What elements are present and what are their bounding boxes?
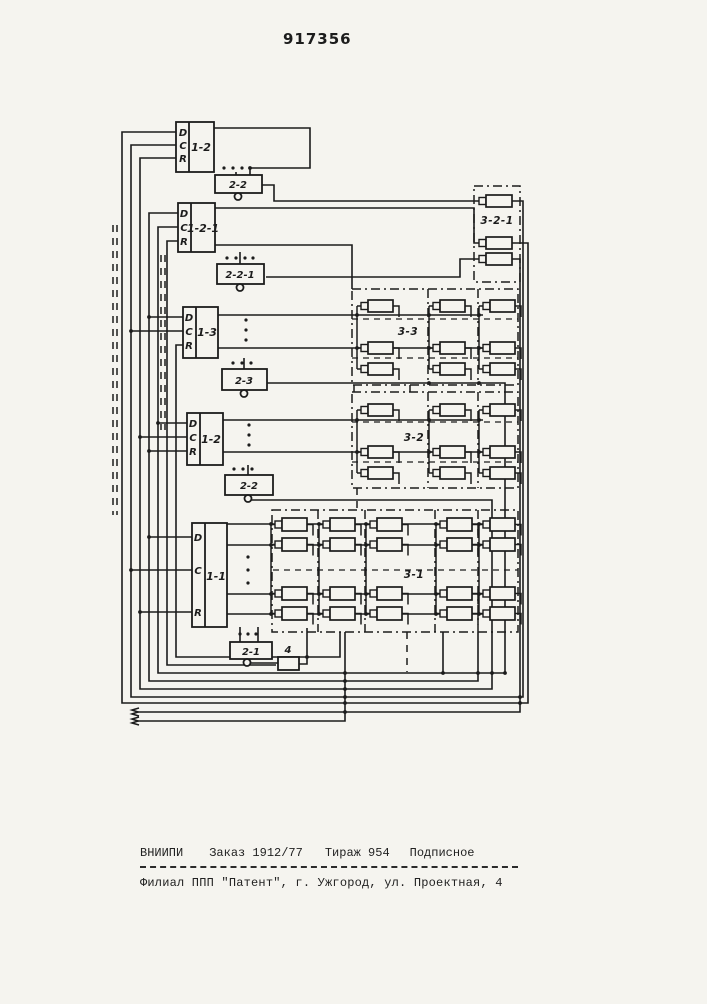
group-row-dividers (273, 319, 518, 570)
cell-input-stub (323, 541, 330, 548)
patent-number: 917356 (283, 30, 352, 48)
pin-label-d: D (180, 209, 188, 220)
cell-input-stub (479, 256, 486, 263)
matrix-cell (368, 300, 393, 312)
junction-dot (477, 543, 481, 547)
cell-output-wire (307, 525, 313, 536)
cell-output-wire (355, 525, 361, 536)
matrix-cell (330, 607, 355, 620)
matrix-cell (330, 538, 355, 551)
imprint-line1: ВНИИПИ Заказ 1912/77 Тираж 954 Подписное (140, 846, 520, 860)
inverter-dot (241, 390, 248, 397)
junction-dot (269, 592, 273, 596)
cell-input-stub (440, 541, 447, 548)
imprint-divider (140, 866, 518, 868)
matrix-cell (440, 342, 465, 354)
matrix-cell (440, 446, 465, 458)
matrix-cell (440, 363, 465, 375)
junction-dot (441, 671, 445, 675)
sub-link-wires (236, 172, 258, 642)
matrix-cell (486, 195, 512, 207)
junction-dot (343, 687, 347, 691)
ellipsis-dot (246, 581, 249, 584)
cell-output-wire (402, 545, 408, 556)
matrix-cell (282, 518, 307, 531)
feed-wire (266, 259, 479, 277)
ellipsis-dot (246, 568, 249, 571)
junction-dot (477, 346, 481, 350)
cell-output-wire (472, 545, 478, 556)
group-label: 3-3 (398, 326, 418, 338)
block-label: 1-1 (206, 570, 226, 583)
matrix-cell (282, 538, 307, 551)
cell-output-wire (472, 525, 478, 536)
matrix-cell (368, 342, 393, 354)
ellipsis-dot (247, 423, 250, 426)
cell-input-stub (370, 541, 377, 548)
junction-dot (129, 568, 133, 572)
junction-dot (138, 610, 142, 614)
cell-input-stub (361, 470, 368, 477)
pin-label-c: C (185, 327, 193, 338)
pin-label-d: D (179, 128, 187, 139)
dashed-row-divider (273, 319, 518, 570)
cell-input-stub (275, 541, 282, 548)
cell-input-stub (361, 345, 368, 352)
matrix-cell (377, 587, 402, 600)
matrix-cell (490, 587, 515, 600)
matrix-cell (486, 253, 512, 265)
ellipsis-dot (244, 318, 247, 321)
junction-dot (477, 522, 481, 526)
cell-input-stub (483, 610, 490, 617)
cell-input-stub (433, 345, 440, 352)
imprint-footer: ВНИИПИ Заказ 1912/77 Тираж 954 Подписное… (140, 846, 520, 890)
junction-dot (364, 522, 368, 526)
ellipsis-dot (246, 555, 249, 558)
cell-input-stub (275, 590, 282, 597)
cell-input-stub (323, 521, 330, 528)
matrix-cell (330, 587, 355, 600)
block-label: 1-2 (191, 141, 211, 154)
junction-dot (434, 543, 438, 547)
junction-dot (427, 381, 431, 385)
matrix-cell (490, 446, 515, 458)
ellipsis-dot (246, 632, 249, 635)
pin-label-d: D (194, 533, 202, 544)
block-label: 1-2 (201, 433, 221, 446)
pin-label-r: R (194, 608, 202, 619)
ellipsis-dot (254, 632, 257, 635)
matrix-cell (282, 587, 307, 600)
pin-label-r: R (189, 447, 197, 458)
junction-dot (355, 450, 359, 454)
junction-dot (477, 313, 481, 317)
cell-input-stub (440, 610, 447, 617)
subblock-label: 2-2 (229, 180, 247, 191)
subblock-label: 2-3 (235, 376, 253, 387)
cell-input-stub (483, 521, 490, 528)
row-wires (218, 315, 483, 614)
junction-dot (364, 612, 368, 616)
ellipsis-dot (222, 166, 225, 169)
imprint-order: Заказ 1912/77 (209, 846, 303, 860)
matrix-cells (271, 195, 521, 625)
cell-output-wire (465, 473, 471, 484)
matrix-cell (447, 538, 472, 551)
group-label: 3-1 (404, 569, 424, 581)
cell-output-wire (393, 369, 399, 380)
cell-input-stub (483, 366, 490, 373)
feed-wire (215, 208, 479, 243)
ellipsis-dot (240, 361, 243, 364)
matrix-cell (447, 587, 472, 600)
junction-dot (434, 522, 438, 526)
cell-input-stub (483, 449, 490, 456)
delay-block-label: 4 (284, 645, 292, 656)
cell-input-stub (433, 366, 440, 373)
patent-figure-page: 917356 (0, 0, 707, 1000)
ellipsis-dot (251, 256, 254, 259)
cell-output-wire (465, 369, 471, 380)
cell-input-stub (361, 303, 368, 310)
cell-input-stub (483, 541, 490, 548)
matrix-cell (490, 518, 515, 531)
matrix-cell (447, 607, 472, 620)
junction-dot (427, 450, 431, 454)
cell-input-stub (275, 521, 282, 528)
ellipsis-dot (225, 256, 228, 259)
matrix-cell (368, 404, 393, 416)
matrix-cell (447, 518, 472, 531)
junction-dot (343, 695, 347, 699)
ellipsis-dot (244, 338, 247, 341)
junction-dot (476, 671, 480, 675)
junction-dot (317, 543, 321, 547)
cell-input-stub (433, 407, 440, 414)
cell-output-wire (307, 614, 313, 625)
group-label: 3-2-1 (480, 215, 513, 227)
matrix-cell (490, 467, 515, 479)
junction-dot (343, 671, 347, 675)
inverter-dot (235, 193, 242, 200)
subblock-label: 2-1 (242, 647, 260, 658)
matrix-cell (490, 404, 515, 416)
cell-input-stub (370, 610, 377, 617)
pin-label-d: D (185, 313, 193, 324)
junction-dot (364, 543, 368, 547)
junction-dot (269, 522, 273, 526)
junction-dot (427, 346, 431, 350)
matrix-cell (490, 607, 515, 620)
cell-output-wire (472, 594, 478, 605)
subblock-label: 2-2 (240, 481, 258, 492)
cell-input-stub (440, 521, 447, 528)
pin-label-r: R (185, 341, 193, 352)
matrix-cell (490, 538, 515, 551)
cell-input-stub (433, 449, 440, 456)
pin-label-d: D (189, 419, 197, 430)
junction-dot (477, 450, 481, 454)
junction-dot (156, 421, 160, 425)
junction-dot (269, 612, 273, 616)
ellipsis-dot (234, 256, 237, 259)
junction-dot (518, 701, 522, 705)
ellipsis-dot (238, 632, 241, 635)
matrix-cell (490, 300, 515, 312)
junction-dot (355, 346, 359, 350)
cell-output-wire (355, 594, 361, 605)
cell-input-stub (440, 590, 447, 597)
cell-input-stub (433, 303, 440, 310)
cell-input-stub (361, 449, 368, 456)
ellipsis-dot (232, 467, 235, 470)
cell-input-stub (323, 590, 330, 597)
cell-output-wire (402, 594, 408, 605)
cell-output-wire (355, 545, 361, 556)
junction-dot (477, 381, 481, 385)
cell-input-stub (479, 240, 486, 247)
junction-dot (355, 313, 359, 317)
cell-input-stub (483, 407, 490, 414)
junction-dot (129, 329, 133, 333)
input-terminals (132, 708, 139, 725)
matrix-cell (440, 404, 465, 416)
junction-dot (248, 166, 252, 170)
cell-input-stub (370, 590, 377, 597)
ellipsis-dot (247, 443, 250, 446)
junction-dot (147, 449, 151, 453)
matrix-cell (440, 300, 465, 312)
junction-dot (503, 671, 507, 675)
pin-label-c: C (189, 433, 197, 444)
cell-input-stub (361, 366, 368, 373)
imprint-subscription: Подписное (410, 846, 475, 860)
matrix-cell (377, 607, 402, 620)
pin-label-r: R (180, 237, 188, 248)
junction-dot (427, 313, 431, 317)
input-terminal-icon (132, 708, 139, 716)
cell-output-wire (307, 594, 313, 605)
matrix-cell (490, 342, 515, 354)
pin-label-c: C (180, 223, 188, 234)
junction-dot (138, 435, 142, 439)
output-loop-wire (214, 128, 310, 175)
inverter-dot (237, 284, 244, 291)
ellipsis-dot (249, 361, 252, 364)
junction-dot (343, 710, 347, 714)
ellipsis-dot (244, 328, 247, 331)
ellipsis-dot (241, 467, 244, 470)
matrix-cell (368, 446, 393, 458)
cell-input-stub (483, 470, 490, 477)
junction-dot (434, 592, 438, 596)
imprint-branch: Филиал ППП "Патент", г. Ужгород, ул. Про… (140, 876, 520, 890)
junction-dot (477, 418, 481, 422)
pin-label-c: C (179, 141, 187, 152)
junction-dot (317, 592, 321, 596)
junction-dot (343, 701, 347, 705)
matrix-cell (282, 607, 307, 620)
matrix-cell (490, 363, 515, 375)
cell-output-wire (402, 525, 408, 536)
imprint-print-run: Тираж 954 (325, 846, 390, 860)
junction-dot (147, 315, 151, 319)
matrix-cell (368, 363, 393, 375)
block-label: 1-2-1 (187, 222, 219, 235)
feed-wire (262, 185, 479, 201)
group-label: 3-2 (404, 432, 424, 444)
inverter-dot (244, 659, 251, 666)
junction-dot (317, 522, 321, 526)
cell-input-stub (361, 407, 368, 414)
junction-dot (477, 592, 481, 596)
matrix-cell (486, 237, 512, 249)
matrix-cell (377, 518, 402, 531)
subblock-label: 2-2-1 (225, 270, 254, 281)
junction-dot (317, 612, 321, 616)
junction-dot (269, 543, 273, 547)
junction-dot (427, 418, 431, 422)
block-label: 1-3 (197, 326, 217, 339)
junction-dot (147, 535, 151, 539)
cell-input-stub (275, 610, 282, 617)
imprint-institute: ВНИИПИ (140, 846, 183, 860)
cell-input-stub (323, 610, 330, 617)
ellipsis-dot (243, 256, 246, 259)
junction-dot (305, 655, 309, 659)
cell-output-wire (393, 473, 399, 484)
cell-output-wire (472, 614, 478, 625)
matrix-cell (377, 538, 402, 551)
matrix-cell (330, 518, 355, 531)
junction-dot (355, 418, 359, 422)
register-blocks (176, 122, 227, 627)
matrix-cell (368, 467, 393, 479)
cell-input-stub (483, 590, 490, 597)
pin-label-c: C (194, 566, 202, 577)
ellipsis-dot (231, 361, 234, 364)
junction-dot (518, 695, 522, 699)
delay-block-4 (278, 657, 299, 670)
cell-output-wire (402, 614, 408, 625)
ellipsis-dot (231, 166, 234, 169)
group-column-dividers (318, 289, 478, 632)
cell-input-stub (483, 345, 490, 352)
ellipsis-dot (240, 166, 243, 169)
pin-label-r: R (179, 154, 187, 165)
inverter-dot (245, 495, 252, 502)
cell-output-wire (307, 545, 313, 556)
cell-input-stub (433, 470, 440, 477)
junction-dot (364, 592, 368, 596)
junction-dot (434, 612, 438, 616)
input-terminal-icon (132, 717, 139, 725)
cell-input-stub (370, 521, 377, 528)
junction-dot (477, 612, 481, 616)
cell-input-stub (483, 303, 490, 310)
ellipsis-dot (247, 433, 250, 436)
matrix-cell (440, 467, 465, 479)
junction-dot (343, 679, 347, 683)
ellipsis-dot (250, 467, 253, 470)
cell-input-stub (479, 198, 486, 205)
cell-output-wire (355, 614, 361, 625)
junction-dot (490, 671, 494, 675)
